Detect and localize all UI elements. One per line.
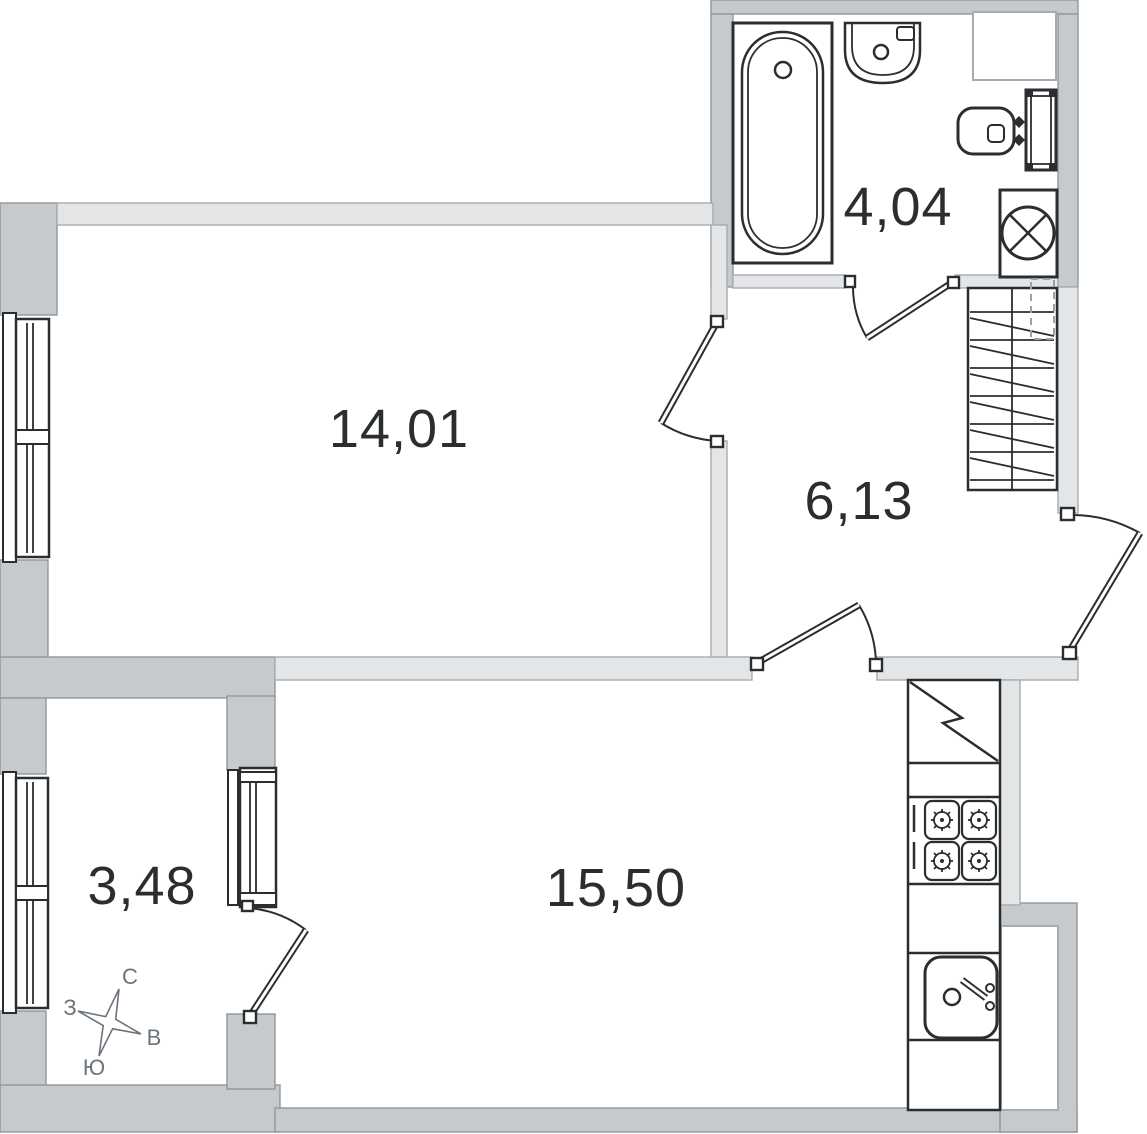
door-balcony [242, 901, 306, 1023]
compass-south-label: Ю [83, 1055, 105, 1081]
door-hallway-kitchen [751, 605, 882, 671]
door-bathroom [845, 276, 959, 338]
burner [962, 842, 996, 880]
compass-north-label: С [122, 964, 138, 990]
wardrobe-icon [968, 279, 1057, 490]
washing-machine-icon [1000, 190, 1057, 277]
washbasin-icon [845, 23, 920, 83]
kitchen-counter [908, 680, 1000, 1110]
kitchen-shaft-niche [1001, 926, 1058, 1110]
kitchen-area-label: 15,50 [546, 857, 686, 919]
kitchen-sink-icon [925, 957, 997, 1038]
burner [962, 801, 996, 839]
door-entrance [1061, 508, 1140, 659]
room-area-label: 14,01 [329, 398, 469, 460]
compass-east-label: В [147, 1025, 162, 1051]
window-balcony-left [3, 772, 48, 1013]
bathroom-shaft-niche [973, 12, 1056, 80]
compass-west-label: З [63, 995, 76, 1021]
burner [925, 842, 959, 880]
door-room-hallway [661, 316, 723, 447]
burner [925, 801, 959, 839]
floor-plan: 14,01 4,04 6,13 15,50 3,48 С З В Ю [0, 0, 1147, 1134]
bathtub-icon [733, 23, 832, 263]
balcony-area-label: 3,48 [87, 855, 196, 917]
window-room-left [3, 313, 49, 562]
floor-plan-drawing [0, 0, 1147, 1134]
compass-rose-icon [78, 989, 141, 1056]
bathroom-area-label: 4,04 [843, 176, 952, 238]
toilet-icon [958, 90, 1056, 170]
hallway-area-label: 6,13 [804, 470, 913, 532]
window-balcony-room [228, 768, 276, 907]
